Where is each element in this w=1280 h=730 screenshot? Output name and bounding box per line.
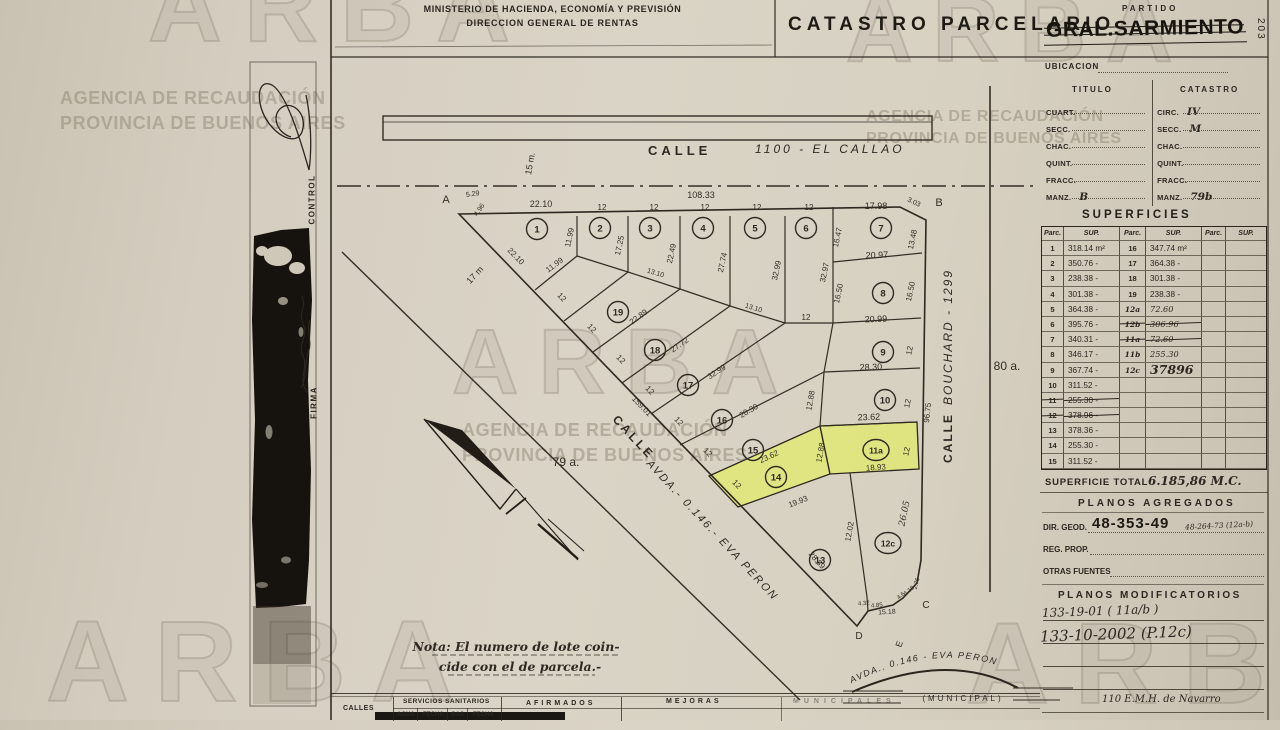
superficies-cell: 255.30 - xyxy=(1064,393,1120,408)
titulo-header: TITULO xyxy=(1072,85,1113,94)
field-rule xyxy=(1183,164,1260,165)
superficies-cell: 12b xyxy=(1120,317,1146,332)
lot-number: 7 xyxy=(878,224,883,235)
superficies-cell: 16 xyxy=(1120,241,1146,256)
superficies-cell xyxy=(1202,454,1226,469)
superficies-cell: 5 xyxy=(1042,302,1064,317)
superficies-cell: 318.14 m² xyxy=(1064,241,1120,256)
col-divider xyxy=(621,697,622,721)
reg-prop-rule xyxy=(1090,554,1264,555)
superficies-cell: 8 xyxy=(1042,347,1064,362)
svg-text:CALLE: CALLE xyxy=(941,413,955,463)
bottom-table-inner-topline xyxy=(331,696,1040,697)
superficies-cell: 11a xyxy=(1120,332,1146,347)
dim-label: 4.96 xyxy=(473,202,487,217)
superficies-cell xyxy=(1202,256,1226,271)
dim-label: 108.33 xyxy=(687,190,715,200)
superficies-table: Parc.SUP.Parc.SUP.Parc.SUP.1318.14 m²163… xyxy=(1041,226,1267,470)
superficies-cell: 367.74 - xyxy=(1064,363,1120,378)
superficies-cell: 3 xyxy=(1042,271,1064,286)
field-label: CHAC. xyxy=(1046,142,1071,151)
superficies-cell xyxy=(1202,438,1226,453)
sub-divider xyxy=(467,708,468,721)
ubicacion-row: CUART.CIRC.IV xyxy=(1042,102,1266,119)
superficies-cell: 72.60 xyxy=(1146,302,1202,317)
superficies-cell: 306.96 xyxy=(1146,317,1202,332)
dim-label: 4.32 xyxy=(858,600,871,607)
lot-number: 9 xyxy=(880,348,885,359)
lot-number: 3 xyxy=(647,224,652,235)
calles-header: CALLES xyxy=(343,705,374,712)
ubicacion-underline xyxy=(1098,72,1228,73)
field-label: QUINT. xyxy=(1046,159,1072,168)
ubicacion-cell: CHAC. xyxy=(1151,136,1266,153)
municipales-header: MUNICIPALES xyxy=(793,698,896,705)
lot-number: 13 xyxy=(815,556,826,567)
superficies-cell: 15 xyxy=(1042,454,1064,469)
superficies-cell: SUP. xyxy=(1226,227,1266,241)
ubicacion-cell: SECC. xyxy=(1042,119,1151,136)
ministry-header: MINISTERIO DE HACIENDA, ECONOMÍA Y PREVI… xyxy=(335,4,770,28)
map-note: Nota: El numero de lote coin- cide con e… xyxy=(411,639,619,675)
svg-text:cide con el de parcela.-: cide con el de parcela.- xyxy=(439,659,601,674)
superficies-cell: 13 xyxy=(1042,423,1064,438)
field-rule xyxy=(1072,164,1145,165)
dim-label: 26.05 xyxy=(897,500,912,529)
dim-label: 12 xyxy=(585,322,598,335)
planos-agregados-title: PLANOS AGREGADOS xyxy=(1078,498,1236,509)
superficies-cell: 347.74 m² xyxy=(1146,241,1202,256)
superficies-cell: 18 xyxy=(1120,271,1146,286)
firma-label: FIRMA xyxy=(310,381,319,425)
dim-label: 16.50 xyxy=(904,280,917,302)
field-label: MANZ. xyxy=(1046,193,1071,202)
superficies-cell xyxy=(1202,408,1226,423)
total-label: SUPERFICIE TOTAL xyxy=(1045,477,1148,488)
superficies-cell: 12 xyxy=(1042,408,1064,423)
dim-label: 32.99 xyxy=(706,362,728,381)
panel-bottom-rule xyxy=(1042,712,1264,713)
ubicacion-rows: CUART.CIRC.IVSECC.SECC.MCHAC.CHAC.QUINT.… xyxy=(1042,102,1266,204)
agua-header: AGUA xyxy=(397,712,415,718)
ubicacion-cell: CHAC. xyxy=(1042,136,1151,153)
ubicacion-row: MANZ.BMANZ.79b xyxy=(1042,187,1266,204)
dim-label: 11.99 xyxy=(563,227,576,248)
superficies-cell xyxy=(1146,438,1202,453)
dim-label: 11.99 xyxy=(544,255,565,274)
dim-label: 13.10 xyxy=(646,268,665,280)
dim-label: 32.97 xyxy=(818,261,831,283)
superficies-cell xyxy=(1146,393,1202,408)
ubicacion-title: UBICACION xyxy=(1045,62,1099,71)
street-name-avda-calle: CALLE xyxy=(610,412,658,462)
partido-stamp: GRAL.SARMIENTO xyxy=(1046,15,1244,42)
planos-modificatorios-title: PLANOS MODIFICATORIOS xyxy=(1058,590,1242,601)
superficies-cell: 1 xyxy=(1042,241,1064,256)
dim-label: 5.29 xyxy=(466,190,481,199)
ubicacion-cell: FRACC. xyxy=(1042,170,1151,187)
superficies-cell xyxy=(1226,317,1266,332)
superficies-cell: 238.38 - xyxy=(1146,287,1202,302)
ubicacion-row: QUINT.QUINT. xyxy=(1042,153,1266,170)
bottom-table: CALLES SERVICIOS SANITARIOS AGUA FECHA G… xyxy=(331,693,1040,721)
lot-number: 16 xyxy=(717,416,728,427)
street-name-bouchard: CALLE BOUCHARD - 1299 xyxy=(941,269,955,463)
control-signature xyxy=(259,84,310,170)
field-rule xyxy=(1183,181,1260,182)
dim-label: 15 m. xyxy=(523,152,537,176)
north-arrow xyxy=(424,419,584,560)
superficies-cell xyxy=(1226,438,1266,453)
dim-label: 12 xyxy=(614,353,627,366)
planos-agregados-title-rule xyxy=(1042,512,1264,513)
field-rule xyxy=(1183,147,1260,148)
dim-label: 22.10 xyxy=(530,199,553,209)
lot-number: 10 xyxy=(880,396,891,407)
superficies-cell xyxy=(1202,271,1226,286)
page-number: 203 xyxy=(1255,18,1266,41)
street-name-eva-peron-arc: AVDA.. 0.146 - EVA PERON xyxy=(847,650,999,686)
dim-label: 27.72 xyxy=(669,335,691,354)
superficies-cell xyxy=(1202,241,1226,256)
ubicacion-cell: MANZ.B xyxy=(1042,187,1151,204)
superficies-cell xyxy=(1202,423,1226,438)
superficies-cell: 12a xyxy=(1120,302,1146,317)
dim-label: E xyxy=(893,639,904,648)
dir-geod-rule xyxy=(1088,532,1264,533)
ubicacion-row: FRACC.FRACC. xyxy=(1042,170,1266,187)
lot-number: 6 xyxy=(803,224,808,235)
ink-blob xyxy=(252,228,312,608)
superficies-cell: 311.52 - xyxy=(1064,454,1120,469)
lot-number: 8 xyxy=(880,289,885,300)
dim-label: 28.30 xyxy=(859,362,882,373)
ubicacion-cell: CUART. xyxy=(1042,102,1151,119)
dim-label: 12 xyxy=(802,313,811,322)
superficies-cell: 238.38 - xyxy=(1064,271,1120,286)
street-name-el-callao: CALLE xyxy=(648,143,711,158)
superficies-cell: 12c xyxy=(1120,363,1146,378)
superficies-cell xyxy=(1146,423,1202,438)
dim-label: 4.85 xyxy=(871,602,884,609)
superficies-cell xyxy=(1226,302,1266,317)
col-divider xyxy=(501,697,502,721)
field-label: SECC. xyxy=(1046,125,1070,134)
ministry-line2: DIRECCION GENERAL DE RENTAS xyxy=(335,18,770,28)
superficies-cell: SUP. xyxy=(1064,227,1120,241)
superficies-cell: 11 xyxy=(1042,393,1064,408)
superficies-cell xyxy=(1226,408,1266,423)
superficies-cell xyxy=(1120,393,1146,408)
dim-label: 18.93 xyxy=(866,462,887,472)
col-divider xyxy=(781,697,782,721)
superficies-cell xyxy=(1202,332,1226,347)
dim-label: 32.99 xyxy=(770,259,783,281)
superficies-cell xyxy=(1202,287,1226,302)
field-rule xyxy=(1183,198,1260,199)
field-value: B xyxy=(1079,191,1088,203)
dim-label: 17.25 xyxy=(613,234,626,256)
modificatorio-entry1: 133-19-01 ( 11a/b ) xyxy=(1042,602,1159,620)
svg-text:CALLE: CALLE xyxy=(610,412,658,462)
lot-number: 12c xyxy=(881,539,895,549)
dim-label: 23.62 xyxy=(857,412,880,423)
superficies-cell: 311.52 - xyxy=(1064,378,1120,393)
ubicacion-row: SECC.SECC.M xyxy=(1042,119,1266,136)
superficies-cell: SUP. xyxy=(1146,227,1202,241)
lot-number: 17 xyxy=(683,381,694,392)
superficies-cell: 11b xyxy=(1120,347,1146,362)
superficies-cell xyxy=(1226,393,1266,408)
lot-number: 18 xyxy=(650,346,661,357)
block-outline xyxy=(459,207,926,626)
superficies-cell xyxy=(1226,454,1266,469)
superficies-cell: 301.38 - xyxy=(1064,287,1120,302)
dim-label: 12 xyxy=(701,446,714,459)
superficies-cell xyxy=(1202,302,1226,317)
lot-number: 4 xyxy=(700,224,706,235)
ink-smudge xyxy=(253,606,311,664)
superficies-cell xyxy=(1202,347,1226,362)
superficies-cell xyxy=(1226,256,1266,271)
control-label: CONTROL xyxy=(308,170,317,230)
dim-label: 79 a. xyxy=(553,455,580,469)
dim-label: 15.18 xyxy=(878,609,896,617)
field-rule xyxy=(1072,181,1145,182)
ubicacion-table: TITULO CATASTRO CUART.CIRC.IVSECC.SECC.M… xyxy=(1042,80,1266,206)
superficies-cell: 10 xyxy=(1042,378,1064,393)
superficies-cell xyxy=(1226,332,1266,347)
superficies-cell: 255.30 - xyxy=(1064,438,1120,453)
dim-label: 20.97 xyxy=(865,250,888,261)
highlighted-parcels xyxy=(709,422,919,507)
dim-label: C xyxy=(922,600,929,611)
lot-number: 1 xyxy=(534,225,540,236)
superficies-cell: Parc. xyxy=(1042,227,1064,241)
superficies-cell: 364.38 - xyxy=(1064,302,1120,317)
dim-label: 12 xyxy=(643,384,656,397)
superficies-cell: Parc. xyxy=(1202,227,1226,241)
mejoras-header: MEJORAS xyxy=(666,698,722,705)
field-rule xyxy=(1072,130,1145,131)
svg-text:Nota: El numero de lote coin-: Nota: El numero de lote coin- xyxy=(411,639,619,654)
field-rule xyxy=(1183,113,1260,114)
afirmados-header: AFIRMADOS xyxy=(526,700,595,707)
superficies-cell: 4 xyxy=(1042,287,1064,302)
superficies-cell: 2 xyxy=(1042,256,1064,271)
superficies-cell xyxy=(1226,363,1266,378)
dim-label: 12.02 xyxy=(843,520,855,542)
field-value: M xyxy=(1190,123,1202,135)
dim-label: 13.48 xyxy=(906,228,919,250)
superficies-cell: 395.76 - xyxy=(1064,317,1120,332)
dim-label: 12 xyxy=(701,203,710,212)
ubicacion-cell: FRACC. xyxy=(1151,170,1266,187)
superficies-cell xyxy=(1120,378,1146,393)
dim-label: 12 xyxy=(555,291,568,304)
superficies-title: SUPERFICIES xyxy=(1082,209,1192,221)
dim-label: 20.99 xyxy=(864,314,887,325)
superficies-cell xyxy=(1120,408,1146,423)
dim-label: 12 xyxy=(805,203,814,212)
superficies-cell xyxy=(1120,438,1146,453)
dim-label: 27.74 xyxy=(716,251,729,273)
control-strip xyxy=(250,62,316,706)
ruled-line xyxy=(1043,689,1264,690)
superficies-cell: 14 xyxy=(1042,438,1064,453)
dim-label: 28.30 xyxy=(738,402,760,420)
ubicacion-cell: CIRC.IV xyxy=(1151,102,1266,119)
dim-label: 19.93 xyxy=(787,494,809,510)
superficies-cell xyxy=(1146,454,1202,469)
field-label: CIRC. xyxy=(1157,108,1179,117)
field-rule xyxy=(1072,198,1145,199)
reg-prop-label: REG. PROP. xyxy=(1043,545,1089,554)
dir-geod-handnote: 48-264-73 (12a-b) xyxy=(1185,519,1253,532)
superficies-cell xyxy=(1202,363,1226,378)
superficies-cell: 340.31 - xyxy=(1064,332,1120,347)
lot-number: 15 xyxy=(748,446,759,457)
servicios-header: SERVICIOS SANITARIOS xyxy=(403,698,490,705)
gas-header: GAS xyxy=(451,712,464,718)
superficies-cell: 19 xyxy=(1120,287,1146,302)
dir-geod-value: 48-353-49 xyxy=(1092,515,1169,532)
ink-smudge-light xyxy=(253,662,311,704)
superficies-cell xyxy=(1226,241,1266,256)
catastro-header: CATASTRO xyxy=(1180,85,1239,94)
dim-label: 12 xyxy=(650,203,659,212)
dim-label: 2.76 xyxy=(913,577,922,590)
dim-label: 96.75 xyxy=(922,402,933,423)
field-label: QUINT. xyxy=(1157,159,1183,168)
superficies-cell xyxy=(1226,378,1266,393)
ruled-line xyxy=(1043,620,1264,621)
superficies-cell: 346.17 - xyxy=(1064,347,1120,362)
dim-label: 16.50 xyxy=(832,282,845,304)
superficies-cell xyxy=(1120,454,1146,469)
superficies-cell: Parc. xyxy=(1120,227,1146,241)
dim-label: 12 xyxy=(672,415,685,428)
dim-label: 22.89 xyxy=(628,307,650,326)
field-label: CHAC. xyxy=(1157,142,1182,151)
upper-block xyxy=(383,116,932,140)
field-value: IV xyxy=(1187,106,1200,118)
dim-label: A xyxy=(442,194,450,206)
superficies-cell xyxy=(1146,408,1202,423)
planos-modificatorios-top-rule xyxy=(1042,584,1264,585)
dim-label: B xyxy=(935,197,942,209)
superficies-cell: 72.60 xyxy=(1146,332,1202,347)
panel-footer: 110 E.M.H. de Navarro xyxy=(1102,694,1221,705)
dim-label: 12 xyxy=(753,203,762,212)
superficies-cell xyxy=(1202,378,1226,393)
superficies-cell xyxy=(1226,271,1266,286)
dim-label: 80 a. xyxy=(994,359,1021,373)
superficies-cell: 17 xyxy=(1120,256,1146,271)
dim-label: D xyxy=(855,631,862,642)
superficies-cell xyxy=(1120,423,1146,438)
lot-number: 11a xyxy=(869,446,883,456)
superficies-cell xyxy=(1202,317,1226,332)
superficies-cell xyxy=(1146,378,1202,393)
lot-number: 14 xyxy=(771,473,782,484)
lot-numbers: 1234567891011a12c13141516171819 xyxy=(527,218,902,571)
field-value: 79b xyxy=(1190,191,1212,203)
dim-label: 159.01 xyxy=(630,394,654,418)
otras-fuentes-rule xyxy=(1110,576,1264,577)
dim-label: 12 xyxy=(598,203,607,212)
dim-label: 12 xyxy=(904,345,915,356)
dim-label: 17.98 xyxy=(865,201,888,211)
dim-label: 17 m xyxy=(464,264,485,285)
superficies-cell: 378.96 - xyxy=(1064,408,1120,423)
lot-number: 5 xyxy=(752,224,758,235)
superficies-cell xyxy=(1202,393,1226,408)
lot-number: 19 xyxy=(613,308,624,319)
superficies-cell: 37896 xyxy=(1146,363,1202,378)
fecha2-header: FECHA xyxy=(473,712,494,718)
total-value: 6.185,86 M.C. xyxy=(1148,474,1242,488)
dim-label: 12 xyxy=(902,398,913,409)
dim-label: 3.03 xyxy=(906,197,921,209)
partido-label: PARTIDO xyxy=(1122,4,1178,13)
field-rule xyxy=(1183,130,1260,131)
superficies-cell xyxy=(1226,423,1266,438)
superficies-cell: 301.38 - xyxy=(1146,271,1202,286)
superficies-cell: 255.30 xyxy=(1146,347,1202,362)
sub-divider xyxy=(447,708,448,721)
svg-text:BOUCHARD - 1299: BOUCHARD - 1299 xyxy=(941,269,955,405)
otras-fuentes-label: OTRAS FUENTES xyxy=(1043,567,1111,576)
field-rule xyxy=(1072,113,1145,114)
superficies-cell: 364.38 - xyxy=(1146,256,1202,271)
dim-label: 22.49 xyxy=(665,242,678,264)
ubicacion-cell: QUINT. xyxy=(1042,153,1151,170)
superficies-cell xyxy=(1226,347,1266,362)
field-rule xyxy=(1072,147,1145,148)
parcel-14-highlight xyxy=(709,426,830,507)
superficie-total-row: SUPERFICIE TOTAL 6.185,86 M.C. xyxy=(1040,470,1268,493)
dir-geod-label: DIR. GEOD. xyxy=(1043,523,1087,532)
fecha-header: FECHA xyxy=(423,712,444,718)
dimension-labels: ABCDE5.294.963.03108.3322.10121212121217… xyxy=(442,152,1020,649)
dim-label: 22.10 xyxy=(506,246,527,267)
field-label: MANZ. xyxy=(1157,193,1182,202)
street-number-el-callao: 1100 - EL CALLAO xyxy=(755,142,905,156)
field-label: CUART. xyxy=(1046,108,1075,117)
superficies-cell: 9 xyxy=(1042,363,1064,378)
dim-label: 12.88 xyxy=(804,389,816,411)
ubicacion-cell: MANZ.79b xyxy=(1151,187,1266,204)
field-label: SECC. xyxy=(1157,125,1181,134)
ubicacion-row: CHAC.CHAC. xyxy=(1042,136,1266,153)
superficies-cell: 6 xyxy=(1042,317,1064,332)
superficies-cell: 378.36 - xyxy=(1064,423,1120,438)
superficies-cell: 7 xyxy=(1042,332,1064,347)
superficies-cell: 350.76 - xyxy=(1064,256,1120,271)
ministry-line1: MINISTERIO DE HACIENDA, ECONOMÍA Y PREVI… xyxy=(335,4,770,14)
col-divider xyxy=(393,697,394,721)
sub-divider xyxy=(417,708,418,721)
ubicacion-cell: QUINT. xyxy=(1151,153,1266,170)
lot-number: 2 xyxy=(597,224,602,235)
superficies-cell xyxy=(1226,287,1266,302)
right-panel: PARTIDO GRAL.SARMIENTO UBICACION TITULO … xyxy=(1040,0,1268,720)
servicios-subrule xyxy=(393,708,1040,709)
ruled-line xyxy=(1043,666,1264,667)
ubicacion-cell: SECC.M xyxy=(1151,119,1266,136)
